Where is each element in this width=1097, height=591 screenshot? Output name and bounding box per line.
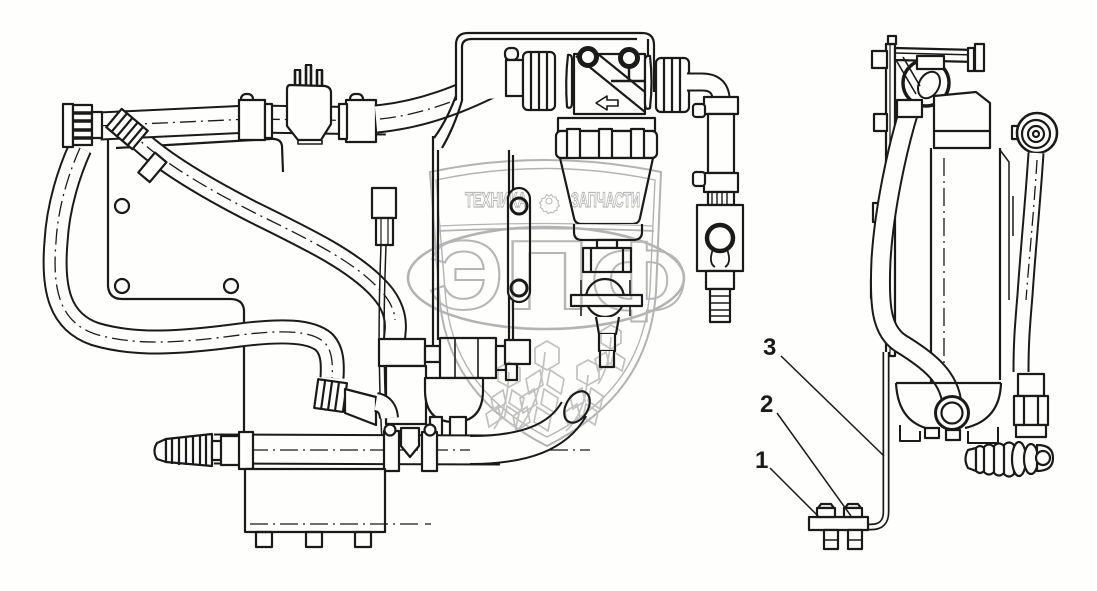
svg-text:Э: Э xyxy=(428,221,503,331)
svg-text:ЗАПЧАСТИ: ЗАПЧАСТИ xyxy=(571,189,640,212)
svg-text:Ф: Ф xyxy=(590,219,687,346)
svg-text:П: П xyxy=(505,220,590,330)
svg-text:ТЕХНИКА: ТЕХНИКА xyxy=(465,189,527,212)
